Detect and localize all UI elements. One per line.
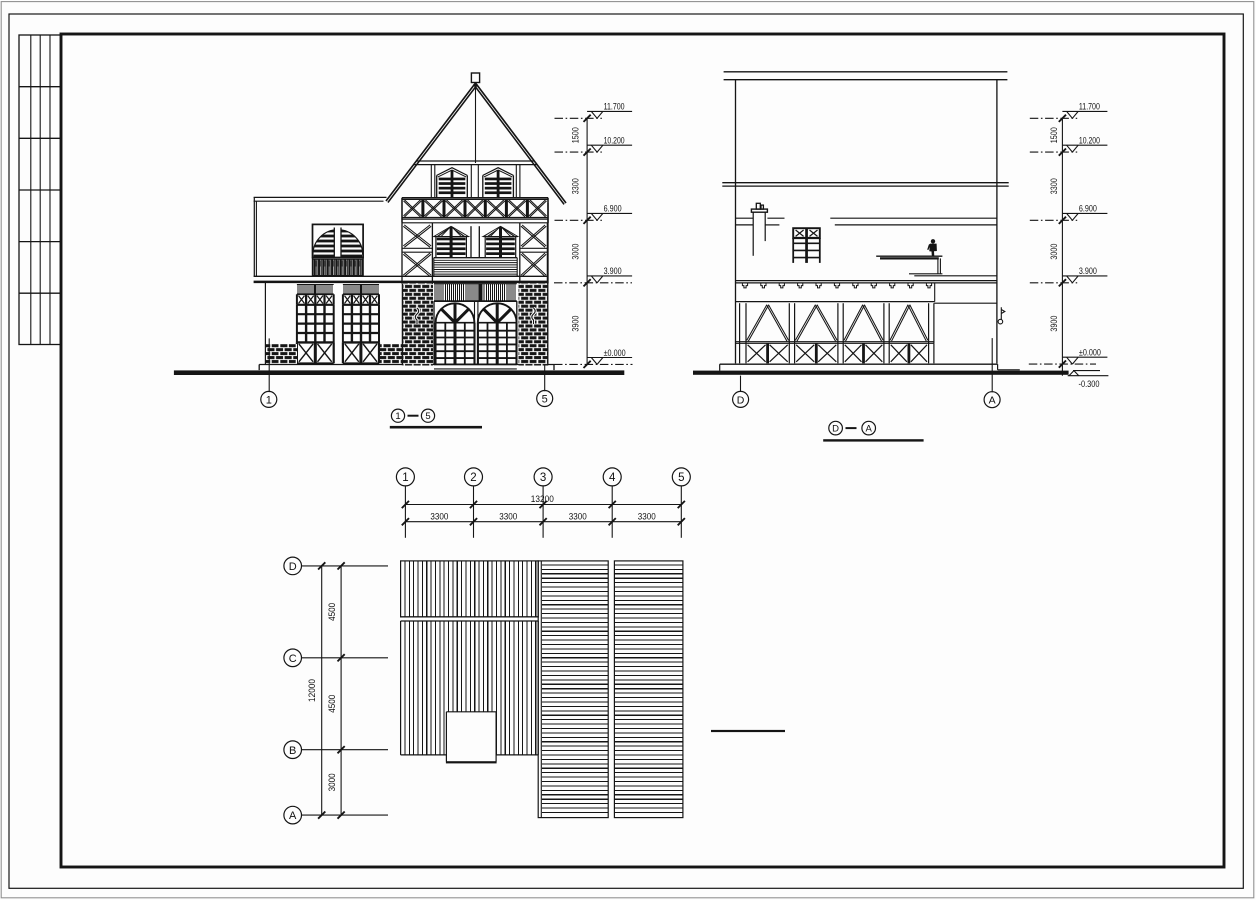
svg-text:3: 3 (540, 472, 546, 484)
svg-text:12000: 12000 (307, 679, 318, 702)
svg-text:±0.000: ±0.000 (604, 348, 626, 359)
svg-text:D: D (737, 394, 745, 406)
svg-text:3.900: 3.900 (1079, 266, 1097, 277)
svg-text:D: D (289, 561, 297, 573)
svg-text:3300: 3300 (499, 511, 517, 522)
svg-text:5: 5 (678, 472, 684, 484)
svg-text:4500: 4500 (327, 603, 338, 621)
svg-text:1: 1 (395, 411, 400, 422)
svg-text:1: 1 (266, 394, 272, 406)
svg-text:6.900: 6.900 (604, 204, 622, 215)
svg-text:±0.000: ±0.000 (1079, 348, 1101, 359)
svg-text:3300: 3300 (571, 178, 581, 194)
svg-text:1: 1 (402, 472, 408, 484)
svg-text:4500: 4500 (327, 695, 338, 713)
svg-text:3000: 3000 (327, 773, 338, 791)
svg-text:C: C (289, 653, 297, 665)
svg-text:10.200: 10.200 (604, 136, 625, 147)
svg-text:3300: 3300 (1049, 178, 1059, 194)
svg-text:11.700: 11.700 (1079, 102, 1100, 113)
svg-text:3900: 3900 (1049, 316, 1059, 332)
svg-text:10.200: 10.200 (1079, 136, 1100, 147)
svg-text:2: 2 (470, 472, 476, 484)
svg-text:3.900: 3.900 (604, 266, 622, 277)
svg-text:D: D (832, 424, 839, 435)
svg-text:6.900: 6.900 (1079, 204, 1097, 215)
svg-text:3000: 3000 (571, 244, 581, 260)
svg-text:3900: 3900 (571, 316, 581, 332)
svg-text:11.700: 11.700 (604, 102, 625, 113)
svg-text:3300: 3300 (430, 511, 448, 522)
svg-text:5: 5 (425, 411, 430, 422)
svg-text:4: 4 (609, 472, 616, 484)
svg-text:A: A (989, 395, 996, 407)
svg-text:3300: 3300 (569, 511, 587, 522)
svg-text:5: 5 (542, 394, 548, 406)
svg-text:B: B (289, 745, 296, 757)
svg-text:1500: 1500 (1049, 127, 1059, 143)
svg-text:-0.300: -0.300 (1079, 379, 1100, 390)
svg-text:3000: 3000 (1049, 244, 1059, 260)
svg-text:A: A (866, 424, 873, 435)
svg-text:3300: 3300 (638, 511, 656, 522)
svg-text:1500: 1500 (571, 127, 581, 143)
svg-text:13200: 13200 (531, 494, 554, 505)
svg-text:A: A (289, 810, 297, 822)
